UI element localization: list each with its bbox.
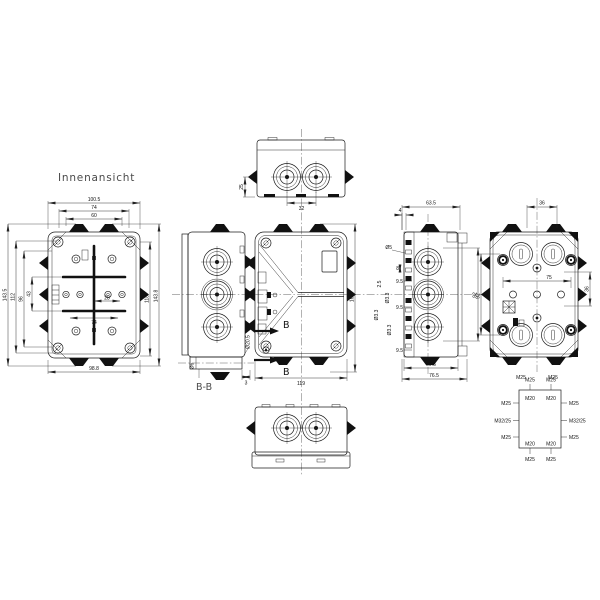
- dim-label: 43: [27, 291, 33, 297]
- side-view: 63.5 4 Ø5 8 9.5 2.5 Ø3.3 9.5 Ø3.3 Ø3.3 9…: [374, 201, 480, 383]
- dim-label: Ø3.3: [387, 324, 393, 335]
- gland-size-label: M25: [569, 435, 579, 441]
- gland-size-label: M20: [525, 442, 535, 448]
- dim-label: 2.5: [377, 280, 383, 287]
- small-knockout-icon: [566, 325, 577, 336]
- bottom-view: [246, 405, 356, 469]
- inner-view-title: Innenansicht: [58, 172, 135, 184]
- section-caption: B-B: [196, 382, 212, 393]
- dim-label: 92: [476, 293, 482, 299]
- top-view: 25 32: [239, 138, 354, 213]
- dim-label: 32: [299, 206, 305, 212]
- cable-gland-icon: [271, 161, 303, 193]
- knockout-icon: [510, 324, 533, 347]
- dim-label: Ø20.5: [246, 335, 252, 349]
- dim-label: 164: [350, 294, 356, 303]
- knockout-icon: [510, 243, 533, 266]
- small-knockout-icon: [498, 325, 509, 336]
- small-knockout-icon: [566, 255, 577, 266]
- gland-size-label: M25: [501, 401, 511, 407]
- dim-label: 9.5: [396, 279, 403, 285]
- dim-label: 119: [297, 381, 305, 387]
- gland-size-label: M25: [501, 435, 511, 441]
- knockout-icon: [542, 324, 565, 347]
- dim-label: 3: [245, 381, 248, 387]
- gland-size-diagram: M25 M25 M20 M20 M25 M32/25 M25 M25 M32/2…: [494, 378, 586, 464]
- corner-screw-icon: [53, 237, 63, 247]
- cable-gland-icon: [412, 311, 444, 343]
- dim-label: 9.5: [396, 305, 403, 311]
- small-knockout-icon: [498, 255, 509, 266]
- dim-label: 63.5: [426, 201, 436, 207]
- cable-gland-icon: [201, 246, 233, 278]
- gland-size-label: M20: [546, 396, 556, 402]
- dim-label: 112: [11, 293, 17, 301]
- dim-label: Ø3.3: [385, 292, 391, 303]
- dim-label: 60: [91, 213, 97, 219]
- gland-size-label: M25: [546, 457, 556, 463]
- cable-gland-icon: [201, 279, 233, 311]
- dim-label: 98.8: [89, 366, 99, 372]
- dim-label: Ø6: [190, 362, 196, 369]
- cable-gland-icon: [271, 412, 303, 444]
- dim-label: 28: [104, 296, 110, 302]
- section-view: Ø6 Ø20.5 3 B-B: [178, 224, 254, 393]
- corner-screw-icon: [53, 343, 63, 353]
- dim-label: 36: [585, 286, 591, 292]
- corner-screw-icon: [125, 237, 135, 247]
- dim-label: 8: [396, 266, 399, 272]
- gland-size-label: M25: [525, 457, 535, 463]
- dim-label: 96: [19, 296, 25, 302]
- gland-size-label: M20: [525, 396, 535, 402]
- dim-label: 118: [145, 295, 151, 303]
- gland-size-label: M20: [546, 442, 556, 448]
- section-marker-label: B: [283, 367, 290, 378]
- dim-label: 36: [539, 201, 545, 207]
- dim-label: Ø3.3: [374, 309, 380, 320]
- gland-size-label: M32/25: [494, 419, 511, 425]
- technical-drawing: Innenansicht: [0, 0, 600, 600]
- drawing-canvas: Innenansicht: [0, 0, 600, 600]
- dim-label: 74: [91, 320, 97, 326]
- dim-label: 74: [91, 205, 97, 211]
- lid-screw-icon: [331, 341, 341, 351]
- lid-screw-icon: [331, 238, 341, 248]
- cable-gland-icon: [412, 279, 444, 311]
- cable-gland-icon: [300, 161, 332, 193]
- membrane-symbol: [503, 301, 515, 313]
- gland-size-label: M32/25: [569, 419, 586, 425]
- gland-size-label: M25: [569, 401, 579, 407]
- cable-gland-icon: [300, 412, 332, 444]
- dim-label: 76.5: [429, 373, 439, 379]
- section-arrow: B: [254, 320, 290, 335]
- lid-screw-icon: [261, 238, 271, 248]
- corner-screw-icon: [125, 343, 135, 353]
- gland-size-label: M25: [525, 378, 535, 384]
- dim-label: Ø5: [385, 245, 392, 251]
- dim-label: 100.5: [88, 197, 101, 203]
- cable-gland-icon: [201, 311, 233, 343]
- dim-label: 143.5: [3, 289, 9, 302]
- knockout-icon: [542, 243, 565, 266]
- dim-label: 59.5: [426, 362, 436, 368]
- dim-label: 9.5: [396, 348, 403, 354]
- cable-gland-icon: [412, 246, 444, 278]
- gland-size-label: M25: [546, 378, 556, 384]
- dim-label: 25: [239, 184, 245, 190]
- back-view: 36 75 92 36 M25 M25: [476, 201, 593, 382]
- section-marker-label: B: [283, 320, 290, 331]
- inner-view: Innenansicht: [3, 172, 162, 374]
- dim-label: 4: [399, 208, 402, 214]
- dim-label: 143.8: [154, 290, 160, 303]
- dim-label: 75: [546, 275, 552, 281]
